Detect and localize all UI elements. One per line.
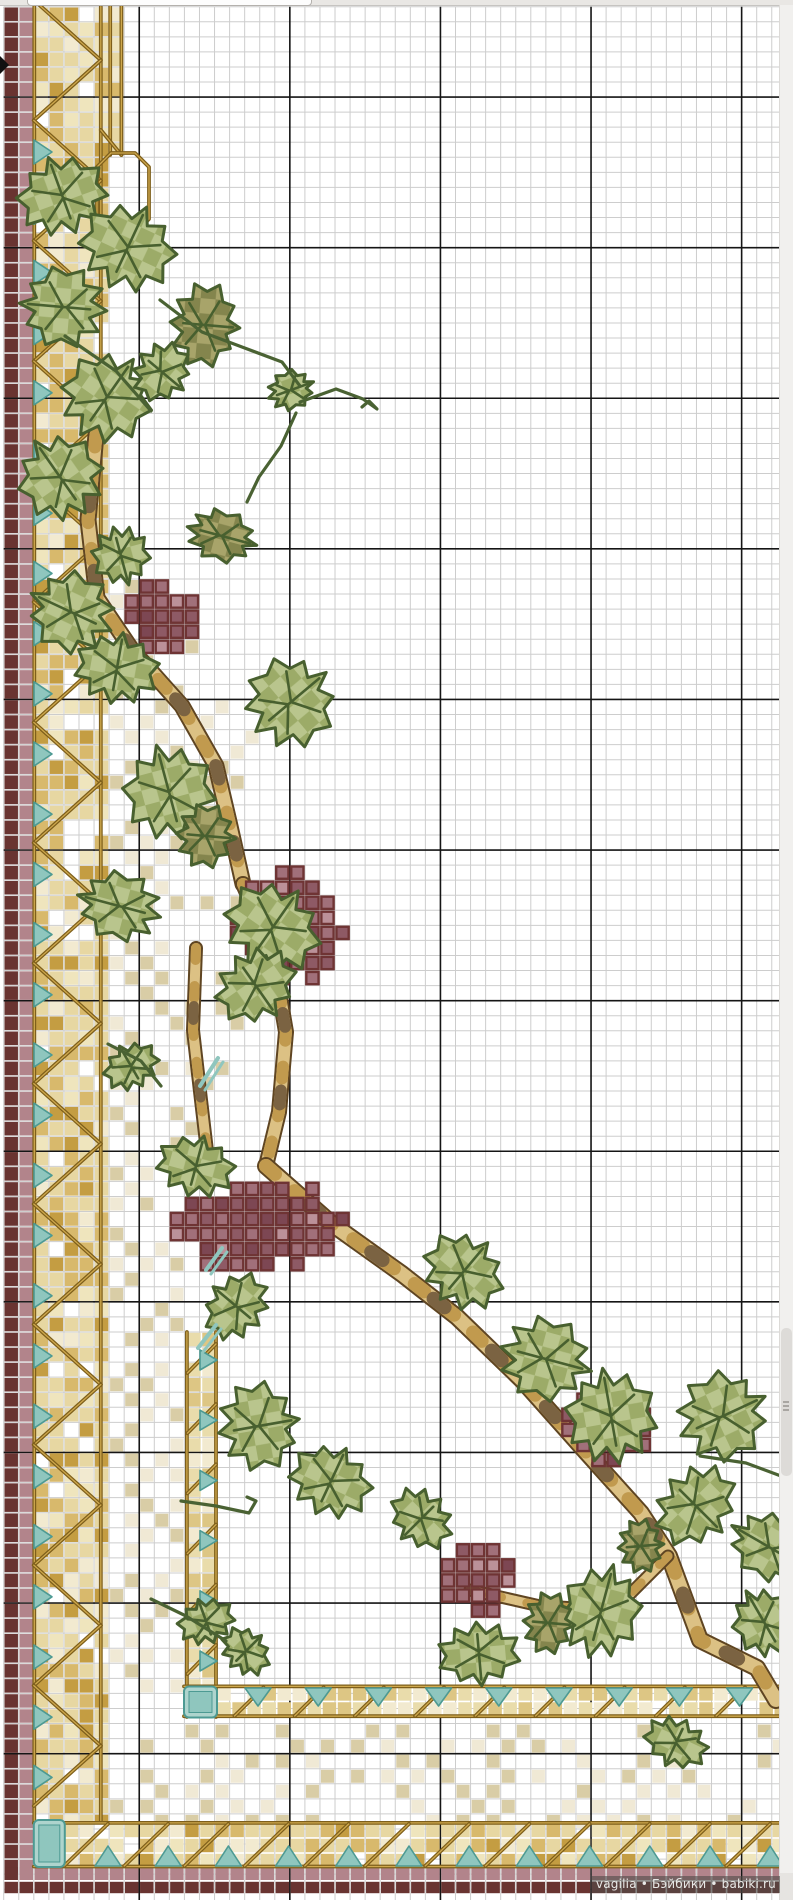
- watermark-label: vagilia • Бэйбики • babiki.ru: [592, 1876, 780, 1893]
- cross-stitch-pattern-page: vagilia • Бэйбики • babiki.ru: [0, 0, 793, 1900]
- ivy-leaf: [378, 1476, 464, 1562]
- address-input[interactable]: [27, 0, 312, 6]
- scrollbar-grip-icon: [783, 1409, 789, 1411]
- ivy-leaf: [151, 1126, 241, 1206]
- scrollbar-grip-icon: [783, 1405, 789, 1407]
- cross-stitch-chart[interactable]: [0, 0, 793, 1900]
- ivy-leaf: [211, 1377, 307, 1476]
- ivy-leaf: [663, 1357, 784, 1474]
- ivy-leaf: [279, 1431, 384, 1531]
- scrollbar-grip-icon: [783, 1401, 789, 1403]
- scrollbar-track[interactable]: [779, 5, 793, 1900]
- ivy-leaf: [181, 503, 263, 570]
- scrollbar-corner: [780, 1873, 793, 1900]
- edge-marker-icon: [0, 56, 9, 74]
- grape-cluster: [442, 1544, 514, 1617]
- grid: [4, 7, 779, 1900]
